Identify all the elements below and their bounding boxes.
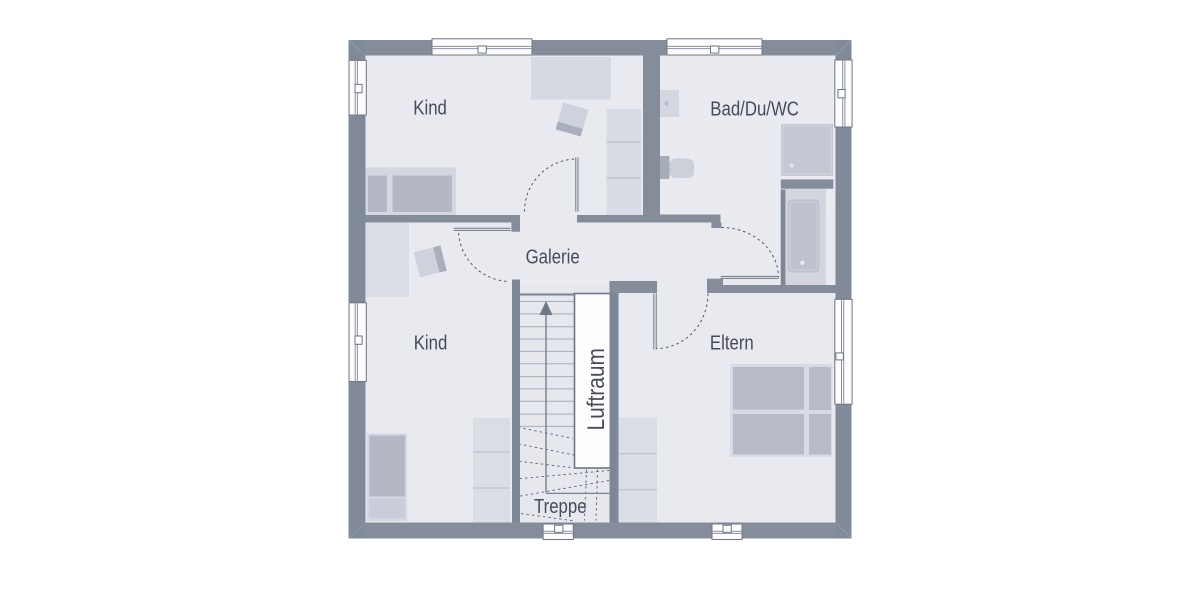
svg-text:Treppe: Treppe: [534, 495, 587, 518]
svg-text:Kind: Kind: [413, 96, 447, 119]
svg-text:Eltern: Eltern: [710, 331, 754, 354]
svg-text:Bad/Du/WC: Bad/Du/WC: [710, 97, 799, 120]
svg-text:Galerie: Galerie: [526, 245, 580, 268]
svg-text:Kind: Kind: [414, 331, 448, 354]
svg-text:Luftraum: Luftraum: [583, 348, 610, 430]
